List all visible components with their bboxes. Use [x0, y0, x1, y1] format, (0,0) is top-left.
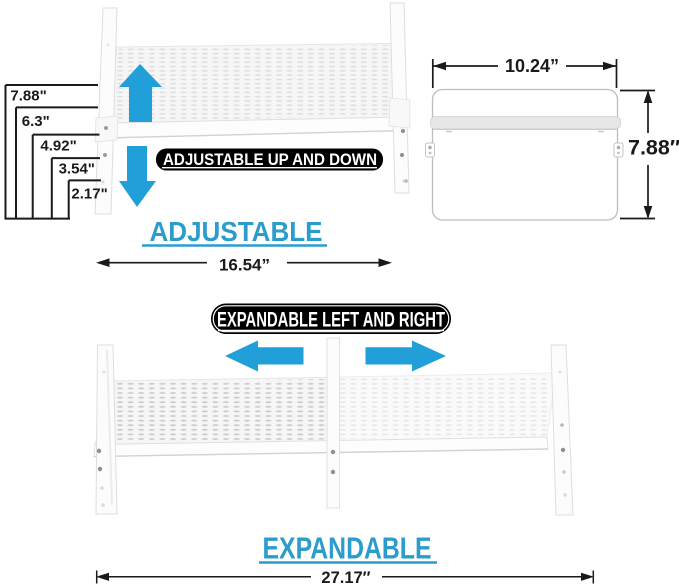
svg-text:10.24”: 10.24”	[505, 56, 559, 76]
svg-text:ADJUSTABLE: ADJUSTABLE	[150, 216, 323, 247]
svg-text:EXPANDABLE: EXPANDABLE	[263, 531, 432, 566]
svg-text:6.3": 6.3"	[22, 113, 50, 130]
svg-text:27.17″: 27.17″	[321, 569, 370, 587]
svg-text:7.88": 7.88"	[10, 88, 46, 105]
svg-text:4.92": 4.92"	[40, 137, 76, 154]
svg-text:7.88″: 7.88″	[628, 136, 679, 160]
svg-text:3.54": 3.54"	[59, 161, 95, 178]
svg-text:2.17": 2.17"	[71, 186, 107, 203]
svg-text:16.54”: 16.54”	[219, 256, 270, 275]
svg-text:EXPANDABLE LEFT AND RIGHT: EXPANDABLE LEFT AND RIGHT	[217, 309, 445, 332]
svg-text:ADJUSTABLE UP AND DOWN: ADJUSTABLE UP AND DOWN	[163, 150, 377, 169]
